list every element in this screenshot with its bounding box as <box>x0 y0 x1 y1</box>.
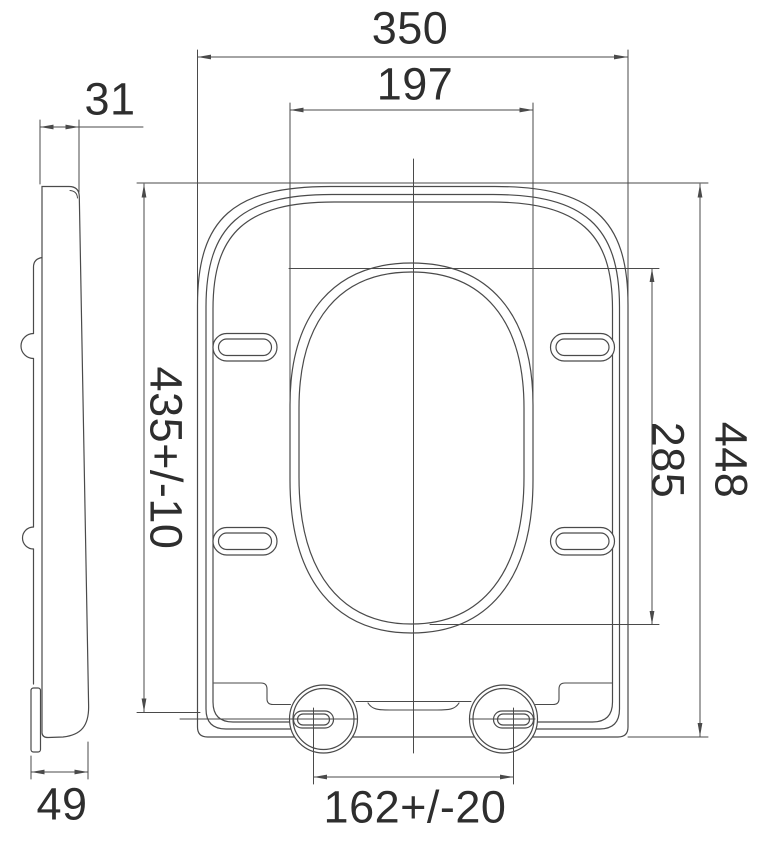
dim-overall-length-label: 448 <box>709 422 754 499</box>
dimension-arrows <box>31 55 702 780</box>
dim-side-top-thickness-label: 31 <box>84 77 135 122</box>
dim-side-bottom-depth-label: 49 <box>36 782 87 827</box>
dim-overall-width-label: 350 <box>372 6 449 51</box>
dim-hinge-spacing-label: 162+/-20 <box>324 785 507 830</box>
dim-seat-length-label: 435+/-10 <box>144 367 189 550</box>
dim-opening-width-label: 197 <box>377 62 454 107</box>
side-view <box>21 187 89 753</box>
dimension-lines <box>31 50 708 779</box>
dim-opening-length-label: 285 <box>646 422 691 499</box>
top-view <box>198 187 629 754</box>
center-lines <box>180 159 535 784</box>
drawing-canvas: 350 197 31 435+/-10 448 285 162+/-20 49 <box>0 0 766 849</box>
